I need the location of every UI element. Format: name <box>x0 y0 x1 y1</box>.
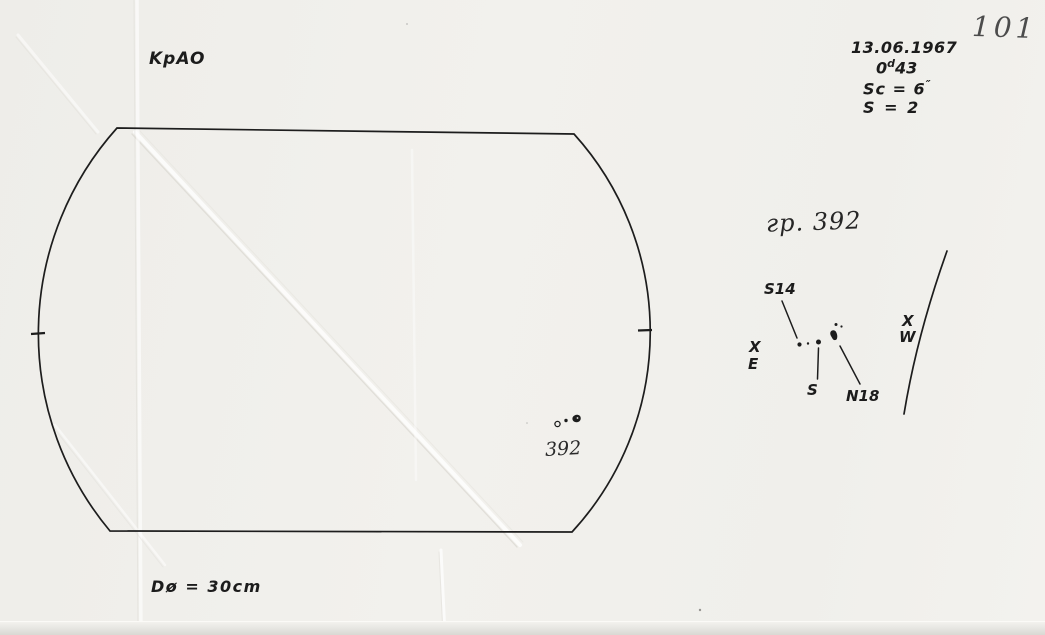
crease-topleft <box>18 35 98 132</box>
east-label: E <box>748 355 758 373</box>
sketch-spot-2 <box>807 342 809 344</box>
aperture-label: Dø = 30cm <box>151 577 262 596</box>
seeing-value: Sc = 6″ <box>863 78 932 98</box>
crease-bottomleft <box>55 425 165 565</box>
sketch-spot-3 <box>816 340 821 345</box>
paper-creases <box>16 0 523 635</box>
sketch-spot-5 <box>840 325 842 327</box>
sunspot-dot <box>564 419 567 422</box>
crease-topleft-shadow <box>16 37 96 134</box>
time-unit-sup: d <box>887 57 895 70</box>
sketch-spot-blob <box>830 330 837 340</box>
sketch-spot-1 <box>797 342 801 346</box>
disk-tick-left <box>31 333 45 334</box>
label-s14: S14 <box>764 280 796 298</box>
crease-bottomleft-shadow <box>53 427 163 567</box>
disk-sunspot-group-392 <box>555 415 581 427</box>
east-marker-x: X <box>749 338 761 356</box>
page-number: 101 <box>971 10 1038 45</box>
label-n18: N18 <box>846 387 879 405</box>
quality-index: S = 2 <box>863 98 920 117</box>
solar-disk-outline <box>38 128 650 532</box>
time-base: 0 <box>876 58 887 77</box>
sketch-group-title: гр. 392 <box>766 206 862 237</box>
pointer-line-s14 <box>782 301 797 338</box>
crease-diagonal-shadow <box>132 134 517 547</box>
seeing-unit-sup: ″ <box>926 78 932 91</box>
paper-speck <box>526 422 528 424</box>
observatory-label: KpAO <box>149 49 205 69</box>
disk-group-number: 392 <box>544 437 581 461</box>
paper-speck <box>406 23 408 25</box>
paper-specks <box>406 23 701 611</box>
sunspot-blob-core <box>577 417 579 419</box>
paper-speck <box>699 609 701 611</box>
time-rest: 43 <box>895 58 917 77</box>
disk-tick-right <box>638 330 652 331</box>
sunspot-blob <box>572 415 580 422</box>
crease-diagonal <box>135 132 520 545</box>
west-label: W <box>899 328 916 346</box>
scanned-observation-sheet: KpAO 13.06.1967 0d43 Sc = 6″ S = 2 101 г… <box>0 0 1045 635</box>
observation-time: 0d43 <box>876 57 917 77</box>
observation-date: 13.06.1967 <box>851 38 957 57</box>
pointer-line-n18 <box>840 346 860 384</box>
sunspot-ring <box>555 421 560 426</box>
sketch-spot-4 <box>835 323 838 326</box>
crease-diagonal-edge <box>139 130 523 542</box>
seeing-text: Sc = 6 <box>863 79 926 98</box>
pointer-line-s <box>818 348 819 379</box>
paper-bottom-edge <box>0 621 1045 635</box>
label-s: S <box>807 381 818 399</box>
